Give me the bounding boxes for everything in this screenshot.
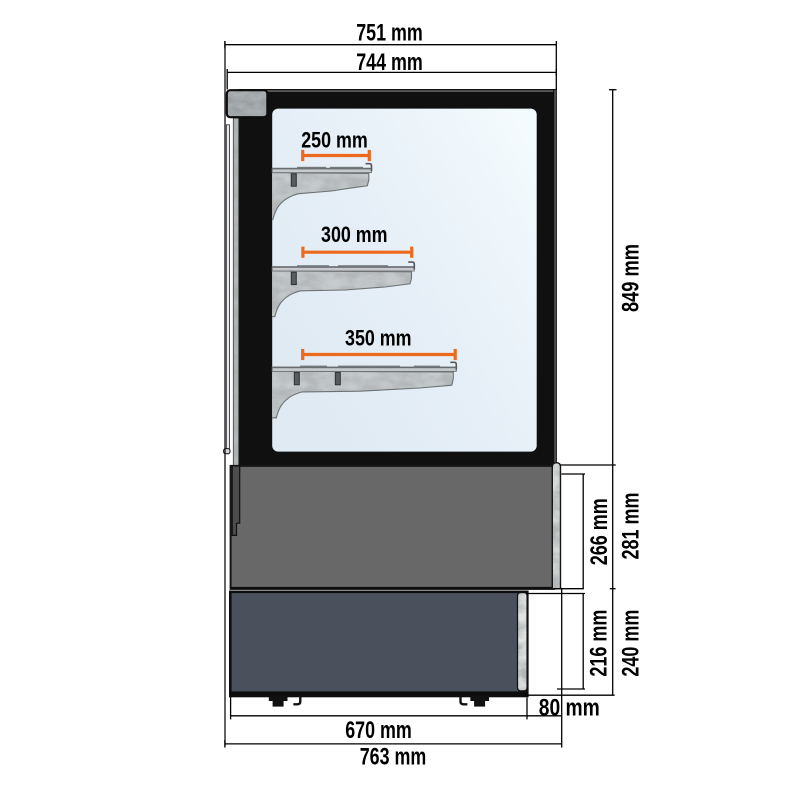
svg-text:849 mm: 849 mm — [617, 244, 644, 312]
svg-text:266 mm: 266 mm — [586, 498, 613, 565]
svg-text:763 mm: 763 mm — [360, 743, 427, 770]
svg-text:300 mm: 300 mm — [321, 222, 388, 247]
svg-text:751 mm: 751 mm — [356, 20, 423, 47]
svg-text:240 mm: 240 mm — [618, 610, 645, 677]
svg-text:281 mm: 281 mm — [617, 493, 644, 560]
svg-text:80 mm: 80 mm — [539, 694, 600, 721]
svg-text:250 mm: 250 mm — [301, 127, 368, 152]
svg-text:216 mm: 216 mm — [586, 610, 613, 677]
svg-text:350 mm: 350 mm — [345, 326, 412, 351]
svg-text:744 mm: 744 mm — [356, 49, 423, 76]
svg-text:670 mm: 670 mm — [345, 717, 412, 744]
